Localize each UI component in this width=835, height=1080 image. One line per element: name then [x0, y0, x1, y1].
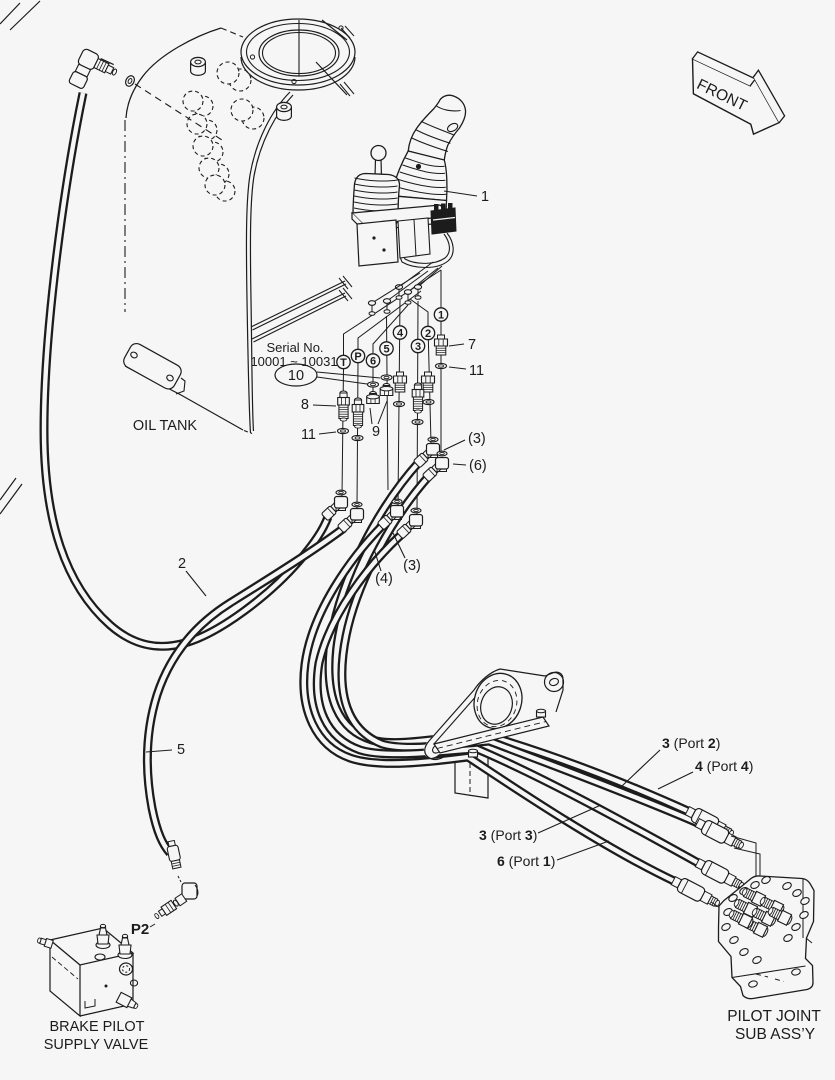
svg-text:(6): (6) [469, 458, 487, 474]
svg-text:6 (Port 1): 6 (Port 1) [497, 853, 555, 869]
svg-text:10: 10 [288, 368, 304, 384]
svg-text:5: 5 [177, 742, 185, 758]
svg-text:3 (Port 3): 3 (Port 3) [479, 827, 537, 843]
svg-text:1: 1 [481, 189, 489, 205]
svg-text:P: P [354, 351, 361, 363]
svg-text:SUPPLY VALVE: SUPPLY VALVE [44, 1037, 149, 1053]
svg-text:(4): (4) [375, 571, 393, 587]
svg-text:10001 ~ 10031: 10001 ~ 10031 [250, 354, 337, 369]
svg-text:5: 5 [383, 343, 389, 355]
svg-text:3: 3 [415, 341, 421, 353]
svg-text:PILOT JOINT: PILOT JOINT [727, 1008, 821, 1025]
svg-text:8: 8 [301, 397, 309, 413]
svg-text:SUB ASS’Y: SUB ASS’Y [735, 1026, 815, 1043]
svg-text:BRAKE PILOT: BRAKE PILOT [49, 1019, 144, 1035]
svg-text:4: 4 [397, 327, 404, 339]
svg-text:2: 2 [178, 556, 186, 572]
svg-text:OIL TANK: OIL TANK [133, 418, 198, 434]
svg-text:P2: P2 [131, 921, 149, 938]
svg-text:2: 2 [425, 328, 431, 340]
svg-text:3 (Port 2): 3 (Port 2) [662, 735, 720, 751]
svg-text:Serial No.: Serial No. [266, 340, 323, 355]
svg-text:(3): (3) [468, 431, 486, 447]
svg-text:6: 6 [370, 355, 376, 367]
svg-text:11: 11 [301, 427, 316, 443]
svg-text:7: 7 [468, 337, 476, 353]
svg-text:4 (Port 4): 4 (Port 4) [695, 758, 753, 774]
svg-text:(3): (3) [403, 558, 421, 574]
svg-text:9: 9 [372, 424, 380, 440]
svg-text:1: 1 [438, 309, 444, 321]
svg-text:11: 11 [469, 363, 484, 379]
svg-text:T: T [340, 357, 347, 369]
